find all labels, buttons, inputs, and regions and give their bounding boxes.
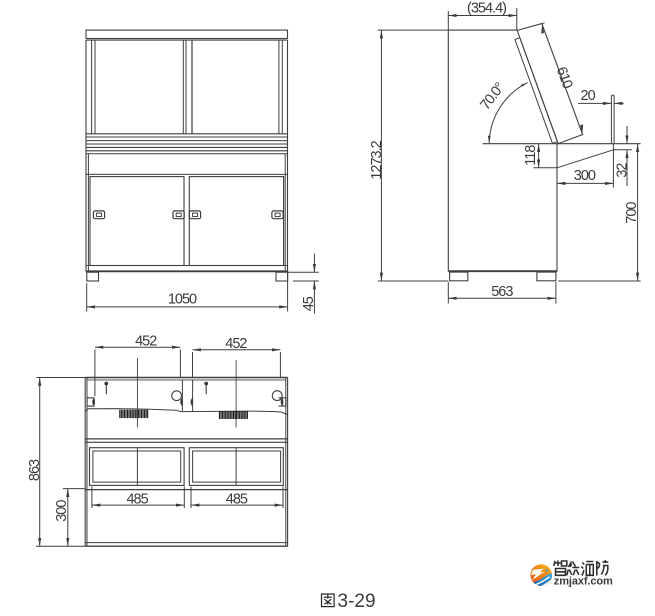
svg-text:300: 300: [574, 168, 596, 184]
svg-text:452: 452: [225, 336, 247, 352]
svg-text:863: 863: [27, 459, 43, 481]
svg-text:1050: 1050: [168, 292, 197, 308]
svg-text:20: 20: [581, 88, 596, 104]
svg-text:485: 485: [226, 492, 248, 508]
svg-text:70.0°: 70.0°: [477, 80, 508, 113]
svg-text:118: 118: [523, 145, 539, 166]
svg-text:485: 485: [126, 492, 148, 508]
svg-text:452: 452: [135, 334, 157, 350]
svg-text:700: 700: [624, 202, 640, 224]
svg-text:(354.4): (354.4): [467, 1, 506, 17]
svg-text:45: 45: [301, 296, 317, 311]
svg-text:32: 32: [615, 163, 631, 178]
svg-text:1273.2: 1273.2: [369, 140, 385, 179]
svg-text:300: 300: [54, 500, 70, 522]
svg-text:3-29: 3-29: [338, 591, 376, 612]
svg-text:610: 610: [553, 65, 576, 91]
svg-text:zmjaxf.com: zmjaxf.com: [554, 575, 613, 587]
svg-text:563: 563: [491, 284, 513, 300]
